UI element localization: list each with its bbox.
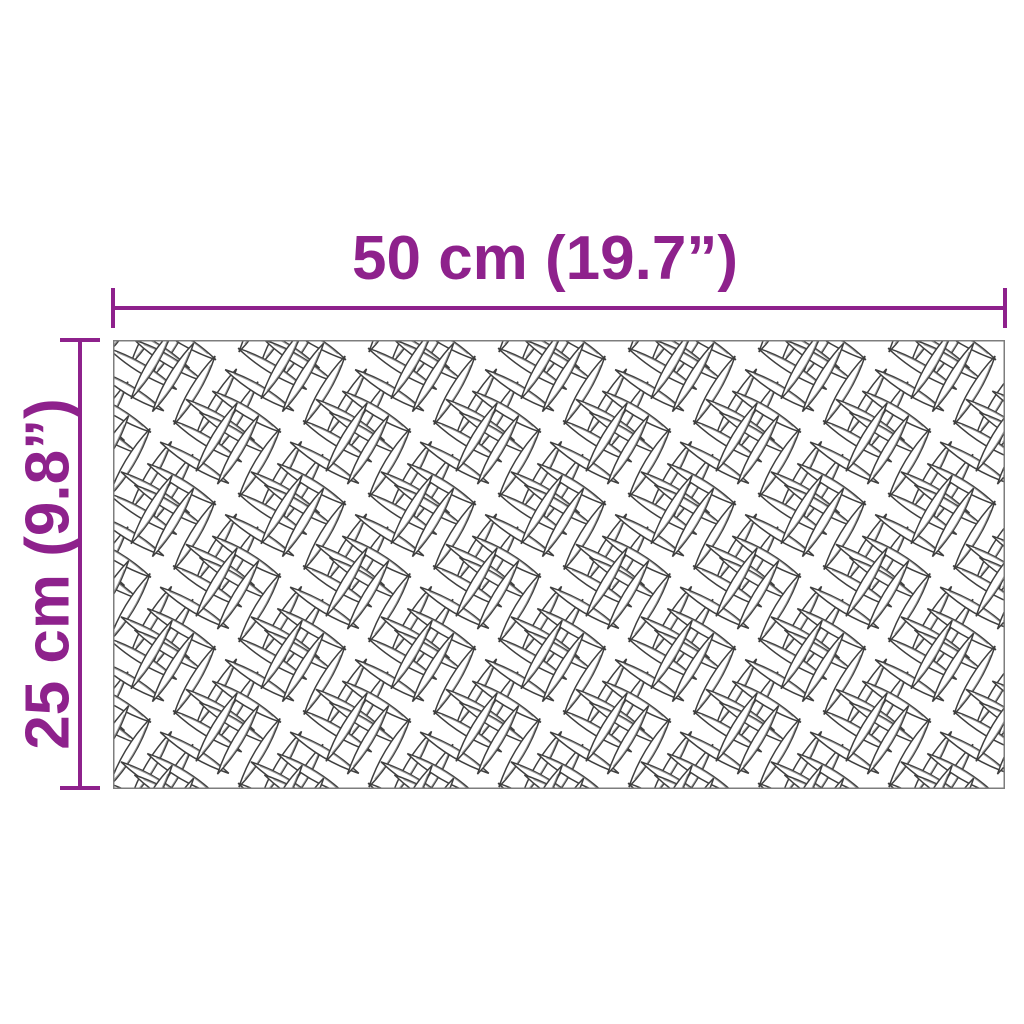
height-dimension-tick-top (60, 338, 100, 342)
width-dimension-tick-left (111, 288, 115, 328)
product-dimension-diagram: 50 cm (19.7”) 25 cm (9.8”) (0, 0, 1024, 1024)
width-dimension-line (113, 306, 1005, 310)
height-dimension-label: 25 cm (9.8”) (13, 398, 82, 750)
checker-plate-surface (114, 341, 1005, 789)
width-dimension-label: 50 cm (19.7”) (352, 224, 738, 293)
height-dimension-line (78, 340, 82, 789)
checker-plate-image (113, 340, 1005, 789)
width-dimension-tick-right (1003, 288, 1007, 328)
height-dimension-tick-bottom (60, 786, 100, 790)
